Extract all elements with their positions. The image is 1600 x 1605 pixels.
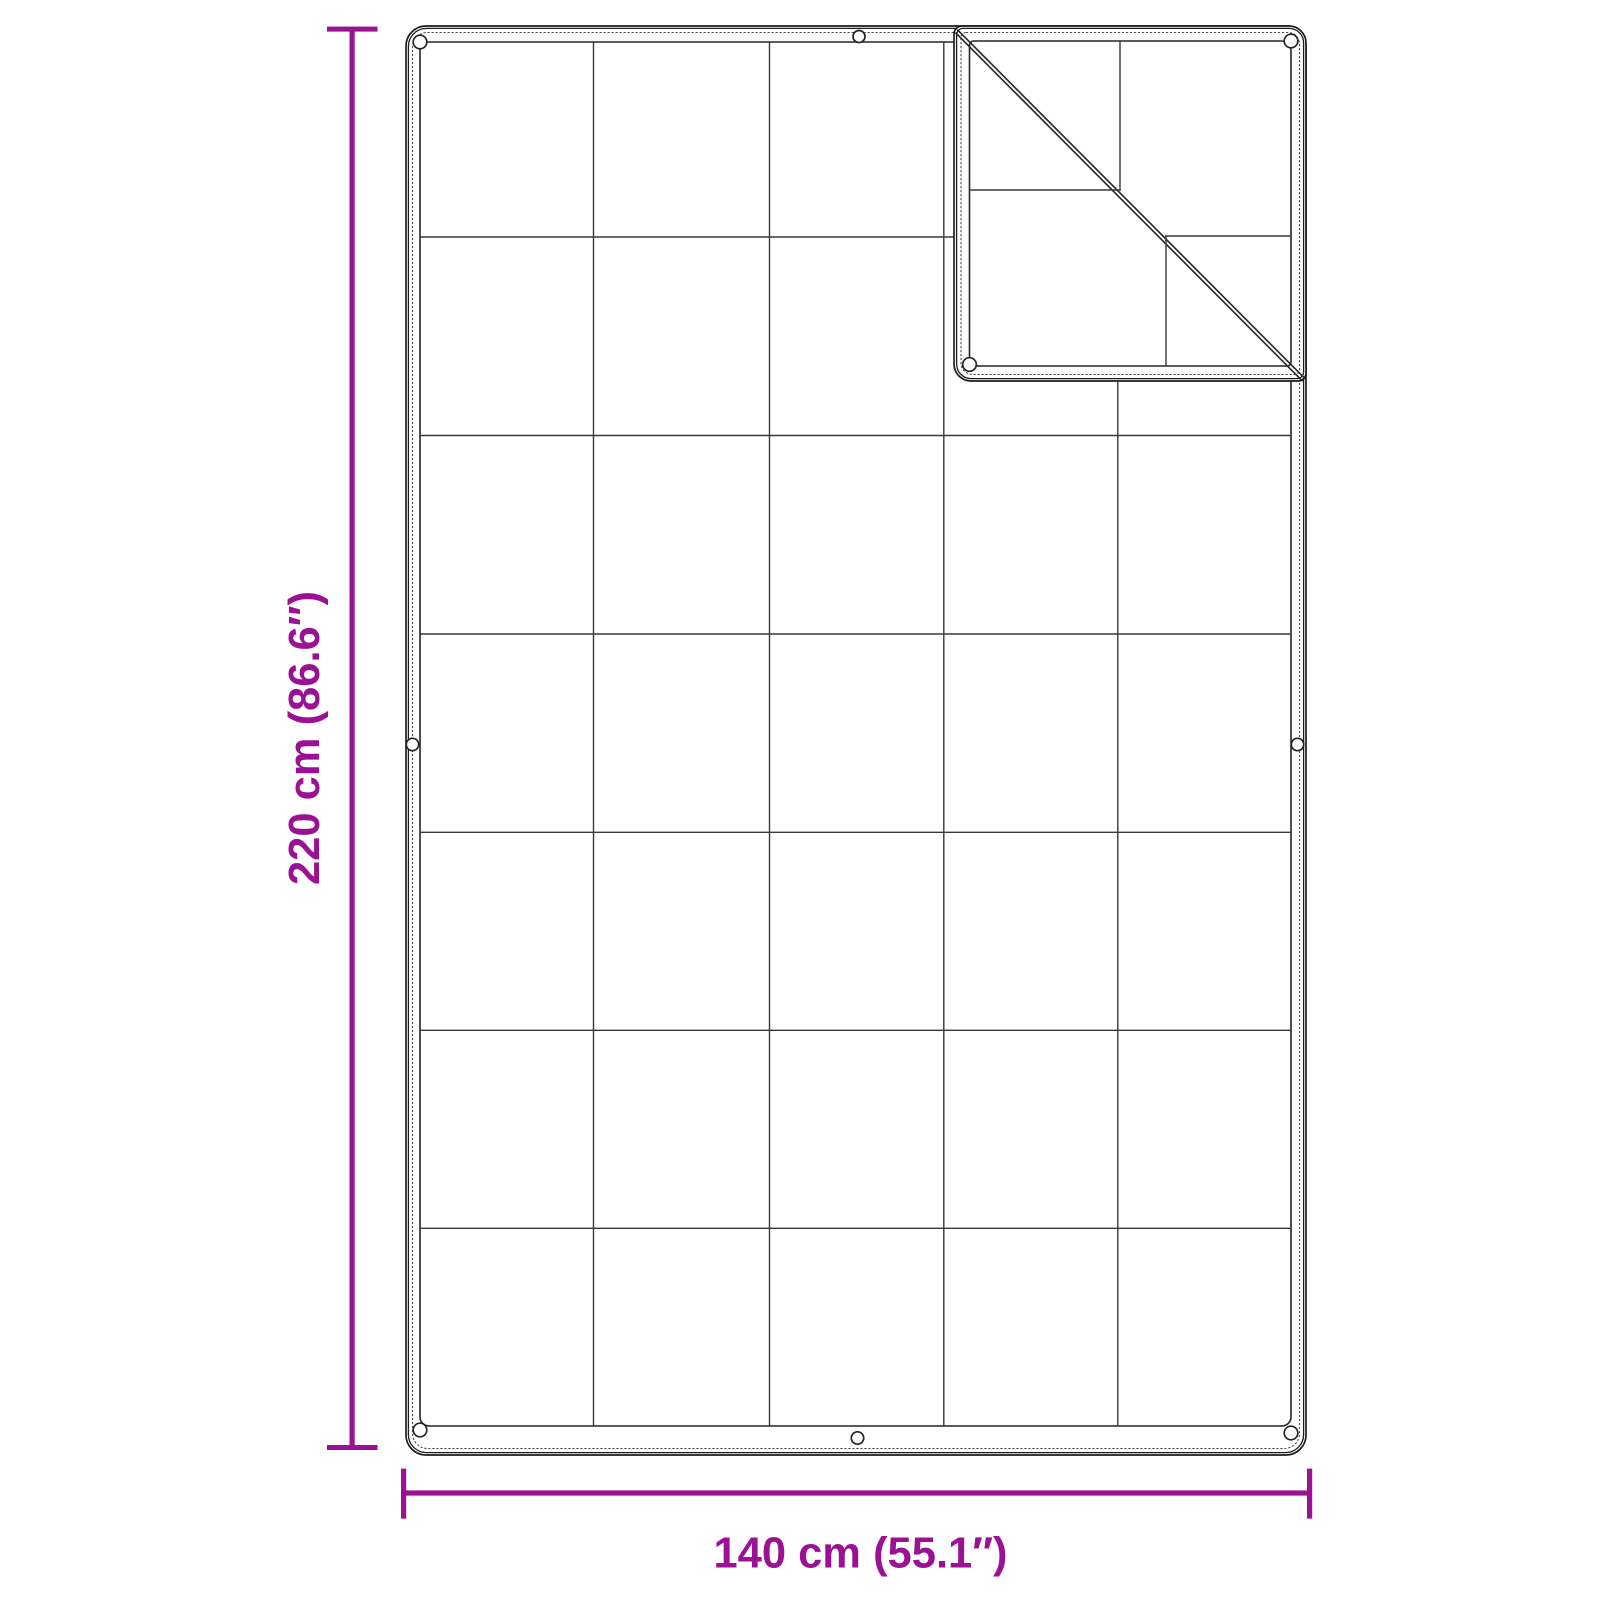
svg-text:220 cm (86.6″): 220 cm (86.6″) — [281, 591, 329, 885]
svg-text:140 cm (55.1″): 140 cm (55.1″) — [713, 1530, 1007, 1578]
